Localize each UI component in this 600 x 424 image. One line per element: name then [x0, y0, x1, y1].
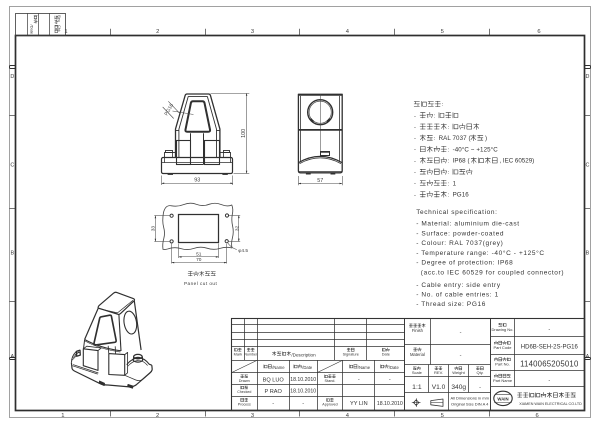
svg-text:- Material: aluminium die-cast: - Material: aluminium die-cast — [416, 220, 520, 227]
svg-text:C: C — [10, 163, 14, 169]
svg-text:D: D — [10, 74, 14, 80]
svg-text:HD6B-SEH-2S-PG16: HD6B-SEH-2S-PG16 — [521, 344, 579, 350]
svg-text:1: 1 — [453, 180, 457, 187]
svg-text:Panel cut out: Panel cut out — [184, 281, 217, 286]
svg-text:Part Code: Part Code — [493, 345, 512, 350]
svg-text:-: - — [414, 159, 416, 165]
svg-text:-: - — [272, 401, 274, 407]
svg-text:Finish: Finish — [412, 328, 424, 333]
svg-text:-: - — [302, 401, 304, 407]
svg-text:V1.0: V1.0 — [432, 384, 446, 391]
svg-text:-: - — [548, 378, 550, 384]
svg-text:5: 5 — [441, 413, 444, 419]
svg-text:-: - — [414, 147, 416, 153]
svg-text:51: 51 — [196, 251, 202, 257]
svg-text:Weight: Weight — [452, 370, 465, 375]
svg-text:57: 57 — [317, 178, 323, 184]
svg-text:XIAMEN WAIN ELECTRICAL CO.LTD: XIAMEN WAIN ELECTRICAL CO.LTD — [519, 402, 582, 406]
svg-text:- No. of cable entries: 1: - No. of cable entries: 1 — [416, 292, 499, 299]
svg-text:Rev: Rev — [57, 15, 61, 22]
svg-text:Date: Date — [382, 352, 390, 356]
svg-text:32: 32 — [234, 225, 240, 231]
svg-text:1: 1 — [61, 413, 64, 419]
svg-text:-: - — [414, 125, 416, 131]
svg-text:YY LIN: YY LIN — [350, 401, 368, 407]
svg-text:B: B — [10, 251, 14, 257]
svg-text:- Cable entry: side entry: - Cable entry: side entry — [416, 282, 501, 289]
svg-text:-: - — [414, 113, 416, 119]
svg-text:Technical specification:: Technical specification: — [416, 209, 497, 216]
svg-text:6: 6 — [537, 29, 540, 35]
svg-text:PG16: PG16 — [453, 192, 470, 199]
svg-text:Drawn: Drawn — [239, 379, 250, 383]
svg-text:Drawing No.: Drawing No. — [491, 327, 513, 332]
svg-text:- Degree of protection: IP68: - Degree of protection: IP68 — [416, 260, 513, 267]
svg-text:Mark: Mark — [234, 352, 243, 356]
svg-text:- Temperature range: -40°C - +: - Temperature range: -40°C - +125°C — [416, 249, 544, 257]
svg-text:Approved: Approved — [322, 403, 337, 407]
svg-text:-: - — [479, 385, 481, 391]
svg-text:-: - — [414, 192, 416, 198]
svg-text:18.10.2010: 18.10.2010 — [377, 401, 403, 407]
svg-text:-: - — [358, 377, 360, 383]
svg-text:5: 5 — [441, 29, 444, 35]
svg-text:WAIN: WAIN — [497, 396, 508, 401]
svg-text:18.10.2010: 18.10.2010 — [290, 389, 316, 395]
svg-text:Material: Material — [410, 352, 425, 357]
svg-text:/Date: /Date — [29, 25, 34, 35]
svg-text:/Name: /Name — [358, 365, 371, 370]
svg-text:-: - — [548, 327, 550, 333]
svg-text:6: 6 — [535, 413, 538, 419]
svg-text:2: 2 — [156, 413, 159, 419]
svg-text:Part Name: Part Name — [493, 378, 513, 383]
svg-text:-: - — [414, 181, 416, 187]
svg-text:-40°C ~ +125°C: -40°C ~ +125°C — [453, 146, 499, 153]
svg-text:-: - — [460, 330, 462, 336]
svg-text:3: 3 — [251, 413, 254, 419]
svg-text:φ4.5: φ4.5 — [238, 248, 248, 254]
svg-text:- Colour: RAL 7037(grey): - Colour: RAL 7037(grey) — [416, 240, 503, 247]
svg-text:Part No.: Part No. — [495, 362, 510, 367]
svg-text:REV.: REV. — [434, 370, 443, 375]
svg-text:33: 33 — [151, 226, 157, 232]
svg-text:P RAO: P RAO — [265, 389, 283, 395]
svg-text:2: 2 — [156, 29, 159, 35]
svg-text:1:1: 1:1 — [412, 384, 422, 391]
svg-text:18.10.2010: 18.10.2010 — [290, 377, 316, 383]
svg-text:3: 3 — [251, 29, 254, 35]
svg-text:Stand.: Stand. — [325, 379, 336, 383]
svg-text:-: - — [460, 353, 462, 359]
svg-text:93: 93 — [194, 178, 200, 184]
svg-text:Process: Process — [238, 403, 251, 407]
svg-text:-: - — [389, 377, 391, 383]
svg-text:B: B — [586, 251, 590, 257]
svg-text:/Date: /Date — [302, 365, 313, 370]
svg-text:All Dimensions in mm: All Dimensions in mm — [450, 395, 489, 400]
svg-text:/Date: /Date — [389, 365, 400, 370]
svg-text:-: - — [414, 136, 416, 142]
svg-text:340g: 340g — [451, 384, 466, 391]
svg-text:, IEC 60529): , IEC 60529) — [499, 158, 534, 165]
svg-text:1: 1 — [64, 29, 67, 35]
svg-text:Original Size DIN A 4: Original Size DIN A 4 — [451, 402, 489, 407]
svg-text:(acc.to IEC 60529 for coupled: (acc.to IEC 60529 for coupled connector) — [421, 269, 564, 276]
svg-text:100: 100 — [241, 129, 247, 138]
svg-text:D: D — [585, 74, 589, 80]
svg-text:Number: Number — [244, 352, 258, 356]
svg-text:Qty.: Qty. — [476, 370, 483, 375]
svg-text:/Description: /Description — [291, 352, 316, 357]
svg-text:1140065205010: 1140065205010 — [520, 360, 579, 369]
svg-text:Signature: Signature — [343, 352, 359, 356]
svg-text:/Name: /Name — [272, 365, 285, 370]
svg-text:RAL 7037 (: RAL 7037 ( — [439, 135, 472, 142]
svg-text:Scale: Scale — [412, 370, 423, 375]
svg-text:C: C — [585, 163, 589, 169]
svg-text:): ) — [485, 135, 487, 142]
svg-text:IP68 (: IP68 ( — [453, 158, 471, 165]
svg-text:Checked: Checked — [237, 390, 251, 394]
svg-text:- Thread size: PG16: - Thread size: PG16 — [416, 301, 486, 308]
svg-text:70: 70 — [196, 257, 202, 263]
svg-text:BQ LUO: BQ LUO — [263, 377, 285, 383]
svg-text:-: - — [414, 170, 416, 176]
svg-text:- Surface: powder-coated: - Surface: powder-coated — [416, 230, 504, 237]
svg-text:Chk: Chk — [57, 25, 61, 32]
